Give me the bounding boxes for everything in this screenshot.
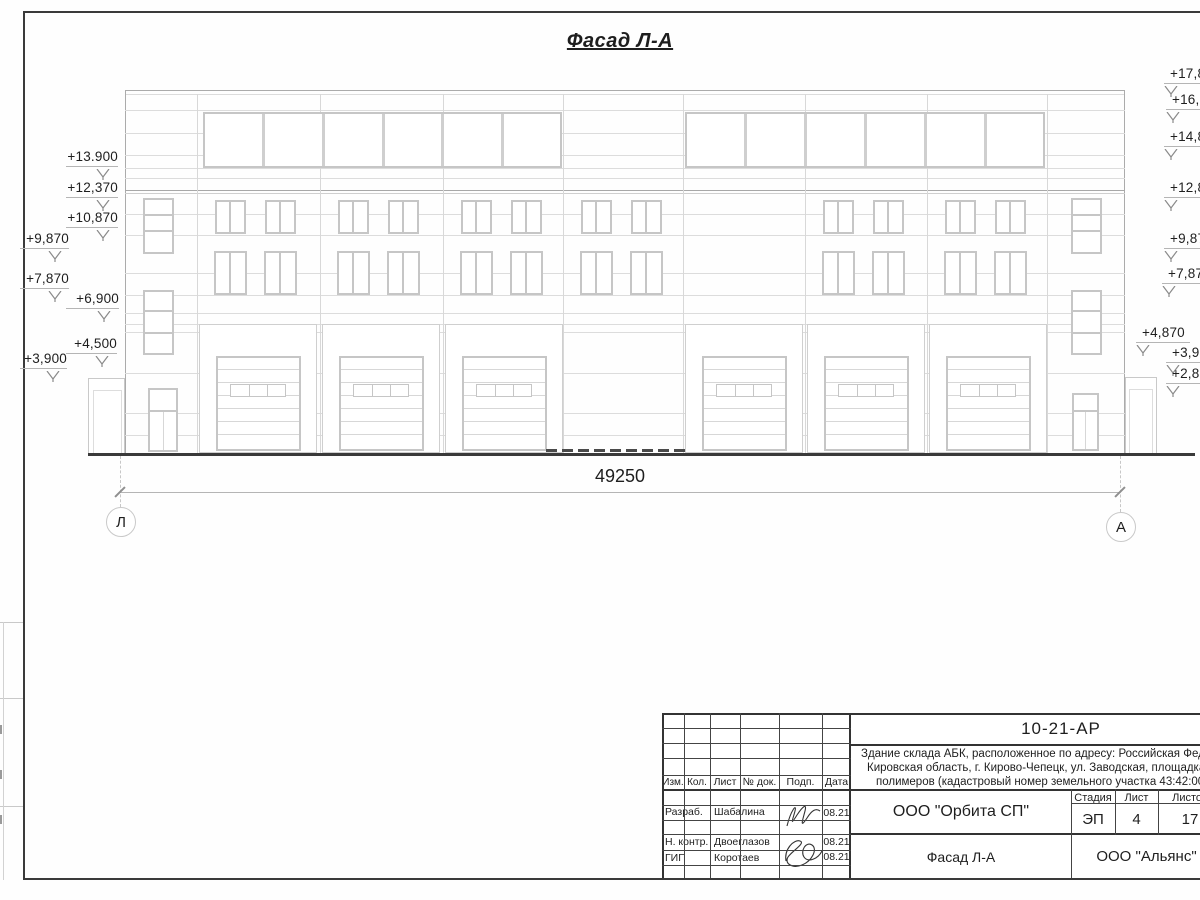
garage-door-window-divider: [979, 385, 980, 396]
stamp-rule-heavy: [849, 713, 851, 880]
grid-axis-bubble-right: А: [1106, 512, 1136, 542]
stamp-rule: [662, 820, 851, 821]
facade-window-mullion: [595, 202, 597, 232]
facade-window-mullion: [1009, 202, 1011, 232]
stamp-col-doc: № док.: [740, 775, 779, 789]
ramp-hatch-dash: [594, 449, 605, 452]
stamp-rule: [662, 805, 851, 806]
stamp-name: Двоеглазов: [714, 836, 770, 848]
garage-door-slat: [704, 369, 785, 370]
elevation-arrow-icon: [96, 167, 110, 178]
garage-door-slat: [341, 369, 422, 370]
elevation-label: +9,870: [1170, 231, 1200, 246]
garage-door-window-strip: [353, 384, 409, 397]
garage-door-slat: [464, 369, 545, 370]
stamp-rule: [662, 775, 851, 776]
stair-window-divider: [145, 214, 172, 216]
stamp-rule: [1158, 789, 1159, 835]
grid-axis-bubble-left: Л: [106, 507, 136, 537]
drawing-title: Фасад Л-А: [480, 30, 760, 53]
facade-joint-line: [125, 295, 1125, 296]
ramp-hatch-dash: [626, 449, 637, 452]
garage-door-window-divider: [513, 385, 514, 396]
stair-window: [143, 198, 174, 254]
garage-door-slat: [704, 434, 785, 435]
garage-door-slat: [218, 408, 299, 409]
garage-door-window-strip: [716, 384, 772, 397]
garage-door-slat: [464, 408, 545, 409]
stair-window-divider: [145, 230, 172, 232]
garage-door-window-strip: [960, 384, 1016, 397]
elevation-arrow-icon: [1164, 147, 1178, 158]
facade-window-mullion: [645, 253, 647, 293]
dimension-extension-line: [1120, 456, 1121, 512]
stair-window: [143, 290, 174, 355]
stair-window: [1071, 198, 1102, 254]
garage-door: [462, 356, 547, 451]
entrance-door-leaf: [1085, 412, 1086, 449]
elevation-arrow-icon: [1166, 110, 1180, 121]
garage-door-slat: [218, 369, 299, 370]
garage-door-slat: [341, 408, 422, 409]
stamp-date: 08.21: [822, 835, 851, 848]
stamp-rule: [740, 713, 741, 880]
entrance-door-leaf: [163, 412, 164, 450]
garage-door-window-divider: [735, 385, 736, 396]
stamp-rule-heavy: [851, 744, 1200, 746]
elevation-label: +17,870: [1170, 66, 1200, 81]
elevation-label: +7,870: [1168, 266, 1200, 281]
clerestory-mullion: [501, 114, 504, 166]
stair-window-divider: [1073, 332, 1100, 334]
stamp-rule: [662, 834, 851, 835]
facade-window-mullion: [352, 202, 354, 232]
garage-door-slat: [826, 369, 907, 370]
garage-door-slat: [948, 421, 1029, 422]
stamp-sheet-title: Фасад Л-А: [851, 835, 1071, 878]
signature-gip: [778, 831, 826, 873]
stamp-rule-heavy: [662, 713, 1200, 715]
elevation-arrow-icon: [46, 369, 60, 380]
elevation-label: +13.900: [46, 149, 118, 164]
sheet-edge-table-line: [3, 622, 4, 880]
garage-door-window-divider: [495, 385, 496, 396]
facade-bay-joint: [683, 94, 684, 453]
facade-level-line: [125, 190, 1125, 191]
elevation-label: +2,870: [1172, 366, 1200, 381]
ramp-hatch-dash: [562, 449, 573, 452]
garage-door: [824, 356, 909, 451]
garage-door-slat: [826, 421, 907, 422]
elevation-label: +7,870: [0, 271, 69, 286]
stamp-rule-heavy: [662, 713, 664, 880]
stamp-rule: [1071, 789, 1072, 880]
elevation-arrow-icon: [96, 228, 110, 239]
facade-window-mullion: [475, 253, 477, 293]
elevation-label: +3,900: [0, 351, 67, 366]
sheet-edge-text-mark: [0, 725, 2, 734]
facade-window-mullion: [279, 253, 281, 293]
facade-joint-line: [125, 235, 1125, 236]
clerestory-mullion: [924, 114, 927, 166]
stamp-col-kol: Кол.: [684, 775, 710, 789]
elevation-label: +6,900: [47, 291, 119, 306]
garage-door-slat: [218, 421, 299, 422]
elevation-arrow-icon: [48, 249, 62, 260]
stamp-rule: [710, 713, 711, 880]
elevation-label: +12,370: [46, 180, 118, 195]
elevation-label: +16,870: [1172, 92, 1200, 107]
dimension-extension-line: [120, 456, 121, 507]
garage-door-slat: [464, 434, 545, 435]
garage-door: [216, 356, 301, 451]
facade-window-mullion: [402, 202, 404, 232]
elevation-label: +10,870: [46, 210, 118, 225]
facade-window-mullion: [279, 202, 281, 232]
clerestory-mullion: [262, 114, 265, 166]
ramp-hatch-dash: [578, 449, 589, 452]
facade-window-mullion: [887, 202, 889, 232]
elevation-label: +3,900: [1172, 345, 1200, 360]
stamp-role: Н. контр.: [665, 836, 708, 848]
stamp-role: ГИП: [665, 852, 686, 864]
stamp-description-line: Здание склада АБК, расположенное по адре…: [861, 748, 1200, 760]
facade-parapet-line: [125, 90, 1125, 91]
facade-bay-joint: [563, 94, 564, 453]
stamp-org: ООО "Орбита СП": [851, 790, 1071, 833]
clerestory-mullion: [744, 114, 747, 166]
elevation-shelf-line: [66, 353, 117, 354]
facade-bay-joint: [1047, 94, 1048, 453]
stamp-rule: [1071, 803, 1200, 804]
stamp-doc-number: 10-21-АР: [851, 715, 1200, 743]
clerestory-mullion: [804, 114, 807, 166]
stamp-name: Коротаев: [714, 852, 759, 864]
stair-window-divider: [145, 332, 172, 334]
stamp-col-podp: Подп.: [779, 775, 822, 789]
facade-window-mullion: [837, 202, 839, 232]
elevation-shelf-line: [66, 227, 118, 228]
sheet-frame-left: [23, 11, 25, 880]
stamp-rule: [662, 865, 851, 866]
stamp-sheet-value: 4: [1115, 805, 1158, 833]
garage-door-window-divider: [390, 385, 391, 396]
elevation-arrow-icon: [95, 354, 109, 365]
clerestory-mullion: [382, 114, 385, 166]
stamp-date: 08.21: [822, 806, 851, 819]
facade-edge-left: [125, 90, 126, 453]
garage-door-slat: [464, 421, 545, 422]
stamp-rule: [662, 758, 851, 759]
grid-axis-label: А: [1116, 519, 1126, 536]
garage-door-window-divider: [249, 385, 250, 396]
garage-door: [946, 356, 1031, 451]
stamp-rule: [662, 743, 851, 744]
porch-right-inner: [1129, 389, 1153, 455]
garage-door-slat: [218, 382, 299, 383]
stamp-rule: [684, 713, 685, 880]
stair-window: [1071, 290, 1102, 355]
garage-door: [702, 356, 787, 451]
elevation-label: +9,870: [0, 231, 69, 246]
facade-window-mullion: [229, 202, 231, 232]
grid-axis-label: Л: [116, 514, 126, 531]
clerestory-mullion: [322, 114, 325, 166]
facade-joint-line: [125, 178, 1125, 179]
garage-door-window-divider: [372, 385, 373, 396]
ramp-hatch-dash: [546, 449, 557, 452]
garage-door-window-divider: [753, 385, 754, 396]
garage-door-slat: [826, 434, 907, 435]
clerestory-mullion: [984, 114, 987, 166]
stair-window-divider: [1073, 214, 1100, 216]
stamp-rule: [1115, 789, 1116, 835]
garage-door-slat: [948, 434, 1029, 435]
facade-window-mullion: [959, 253, 961, 293]
elevation-shelf-line: [66, 197, 118, 198]
stamp-rule: [662, 850, 851, 851]
stamp-rule: [779, 713, 780, 880]
stamp-date: 08.21: [822, 850, 851, 863]
garage-door-slat: [704, 408, 785, 409]
garage-door-slat: [704, 421, 785, 422]
sheet-edge-text-mark: [0, 815, 2, 824]
ground-line: [88, 453, 1195, 456]
ramp-hatch-dash: [610, 449, 621, 452]
elevation-shelf-line: [66, 166, 118, 167]
stair-window-divider: [1073, 230, 1100, 232]
elevation-label: +4,500: [45, 336, 117, 351]
garage-door-window-divider: [857, 385, 858, 396]
facade-window-mullion: [959, 202, 961, 232]
elevation-arrow-icon: [1136, 343, 1150, 354]
facade-window-mullion: [645, 202, 647, 232]
elevation-label: +14,870: [1170, 129, 1200, 144]
stamp-contractor: ООО "Альянс": [1071, 835, 1200, 878]
elevation-label: +12,870: [1170, 180, 1200, 195]
facade-window-mullion: [525, 253, 527, 293]
sheet-frame-top: [23, 11, 1200, 13]
facade-joint-line: [125, 313, 1125, 314]
clerestory-mullion: [441, 114, 444, 166]
clerestory-mullion: [864, 114, 867, 166]
stair-window-divider: [1073, 310, 1100, 312]
elevation-arrow-icon: [96, 198, 110, 209]
facade-bay-joint: [197, 94, 198, 453]
ramp-hatch-dash: [642, 449, 653, 452]
facade-joint-line: [125, 168, 1125, 169]
elevation-shelf-line: [66, 308, 119, 309]
garage-door-slat: [826, 382, 907, 383]
facade-window-mullion: [837, 253, 839, 293]
dimension-value: 49250: [560, 466, 680, 487]
stamp-col-list: Лист: [710, 775, 740, 789]
stamp-rule: [822, 713, 823, 880]
elevation-arrow-icon: [1164, 198, 1178, 209]
garage-door-window-strip: [838, 384, 894, 397]
garage-door-slat: [826, 408, 907, 409]
facade-window-mullion: [1009, 253, 1011, 293]
sheet-edge-text-mark: [0, 770, 2, 779]
garage-door-slat: [218, 434, 299, 435]
facade-level-line2: [125, 193, 1125, 194]
garage-door-window-divider: [997, 385, 998, 396]
elevation-label: +4,870: [1142, 325, 1200, 340]
elevation-arrow-icon: [1164, 249, 1178, 260]
garage-door-slat: [341, 382, 422, 383]
stamp-col-izm: Изм.: [662, 775, 684, 789]
garage-door-slat: [341, 434, 422, 435]
facade-window-mullion: [229, 253, 231, 293]
porch-left-inner: [93, 390, 122, 455]
sheet-frame-bottom: [23, 878, 1200, 880]
garage-door: [339, 356, 424, 451]
signature-razrab: [780, 798, 824, 834]
stamp-description-line: полимеров (кадастровый номер земельного …: [876, 776, 1200, 788]
garage-door-window-strip: [476, 384, 532, 397]
title-block: 10-21-АР Здание склада АБК, расположенно…: [662, 713, 1200, 880]
facade-window-mullion: [887, 253, 889, 293]
stamp-col-data: Дата: [822, 775, 851, 789]
stamp-description-line: Кировская область, г. Кирово-Чепецк, ул.…: [867, 762, 1200, 774]
garage-door-slat: [948, 369, 1029, 370]
stamp-rule: [662, 728, 851, 729]
ramp-hatch-dash: [658, 449, 669, 452]
facade-window-mullion: [402, 253, 404, 293]
stair-window-divider: [145, 310, 172, 312]
stamp-rule-heavy: [851, 833, 1200, 835]
garage-door-slat: [464, 382, 545, 383]
stamp-stage-value: ЭП: [1071, 805, 1115, 833]
facade-window-mullion: [352, 253, 354, 293]
ramp-hatch-dash: [674, 449, 685, 452]
garage-door-slat: [341, 421, 422, 422]
garage-door-slat: [948, 408, 1029, 409]
garage-door-slat: [704, 382, 785, 383]
elevation-arrow-icon: [1166, 384, 1180, 395]
stamp-rule-heavy: [662, 789, 1200, 791]
facade-parapet-line2: [125, 94, 1125, 95]
facade-window-mullion: [595, 253, 597, 293]
facade-window-mullion: [525, 202, 527, 232]
facade-window-mullion: [475, 202, 477, 232]
garage-door-window-divider: [267, 385, 268, 396]
stamp-sheets-value: 17: [1158, 805, 1200, 833]
garage-door-window-divider: [875, 385, 876, 396]
facade-joint-line: [125, 110, 1125, 111]
garage-door-slat: [948, 382, 1029, 383]
elevation-arrow-icon: [97, 309, 111, 320]
drawing-sheet: Фасад Л-А 49250 Л А 10-21-АР Здание скла…: [0, 0, 1200, 900]
garage-door-window-strip: [230, 384, 286, 397]
dimension-line: [120, 492, 1120, 493]
elevation-arrow-icon: [1162, 284, 1176, 295]
